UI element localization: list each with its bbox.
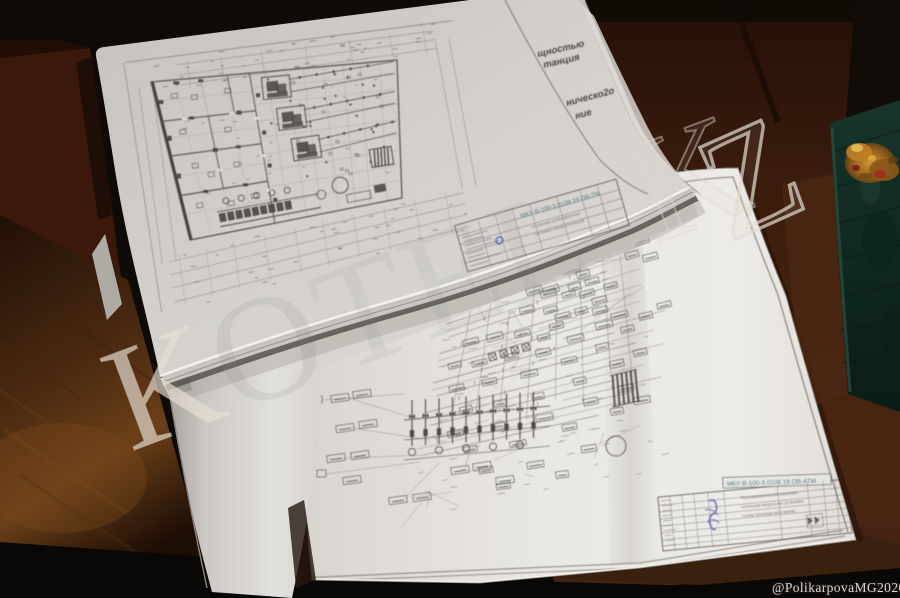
- svg-text:@PolikarpovaMG2020: @PolikarpovaMG2020: [772, 580, 900, 595]
